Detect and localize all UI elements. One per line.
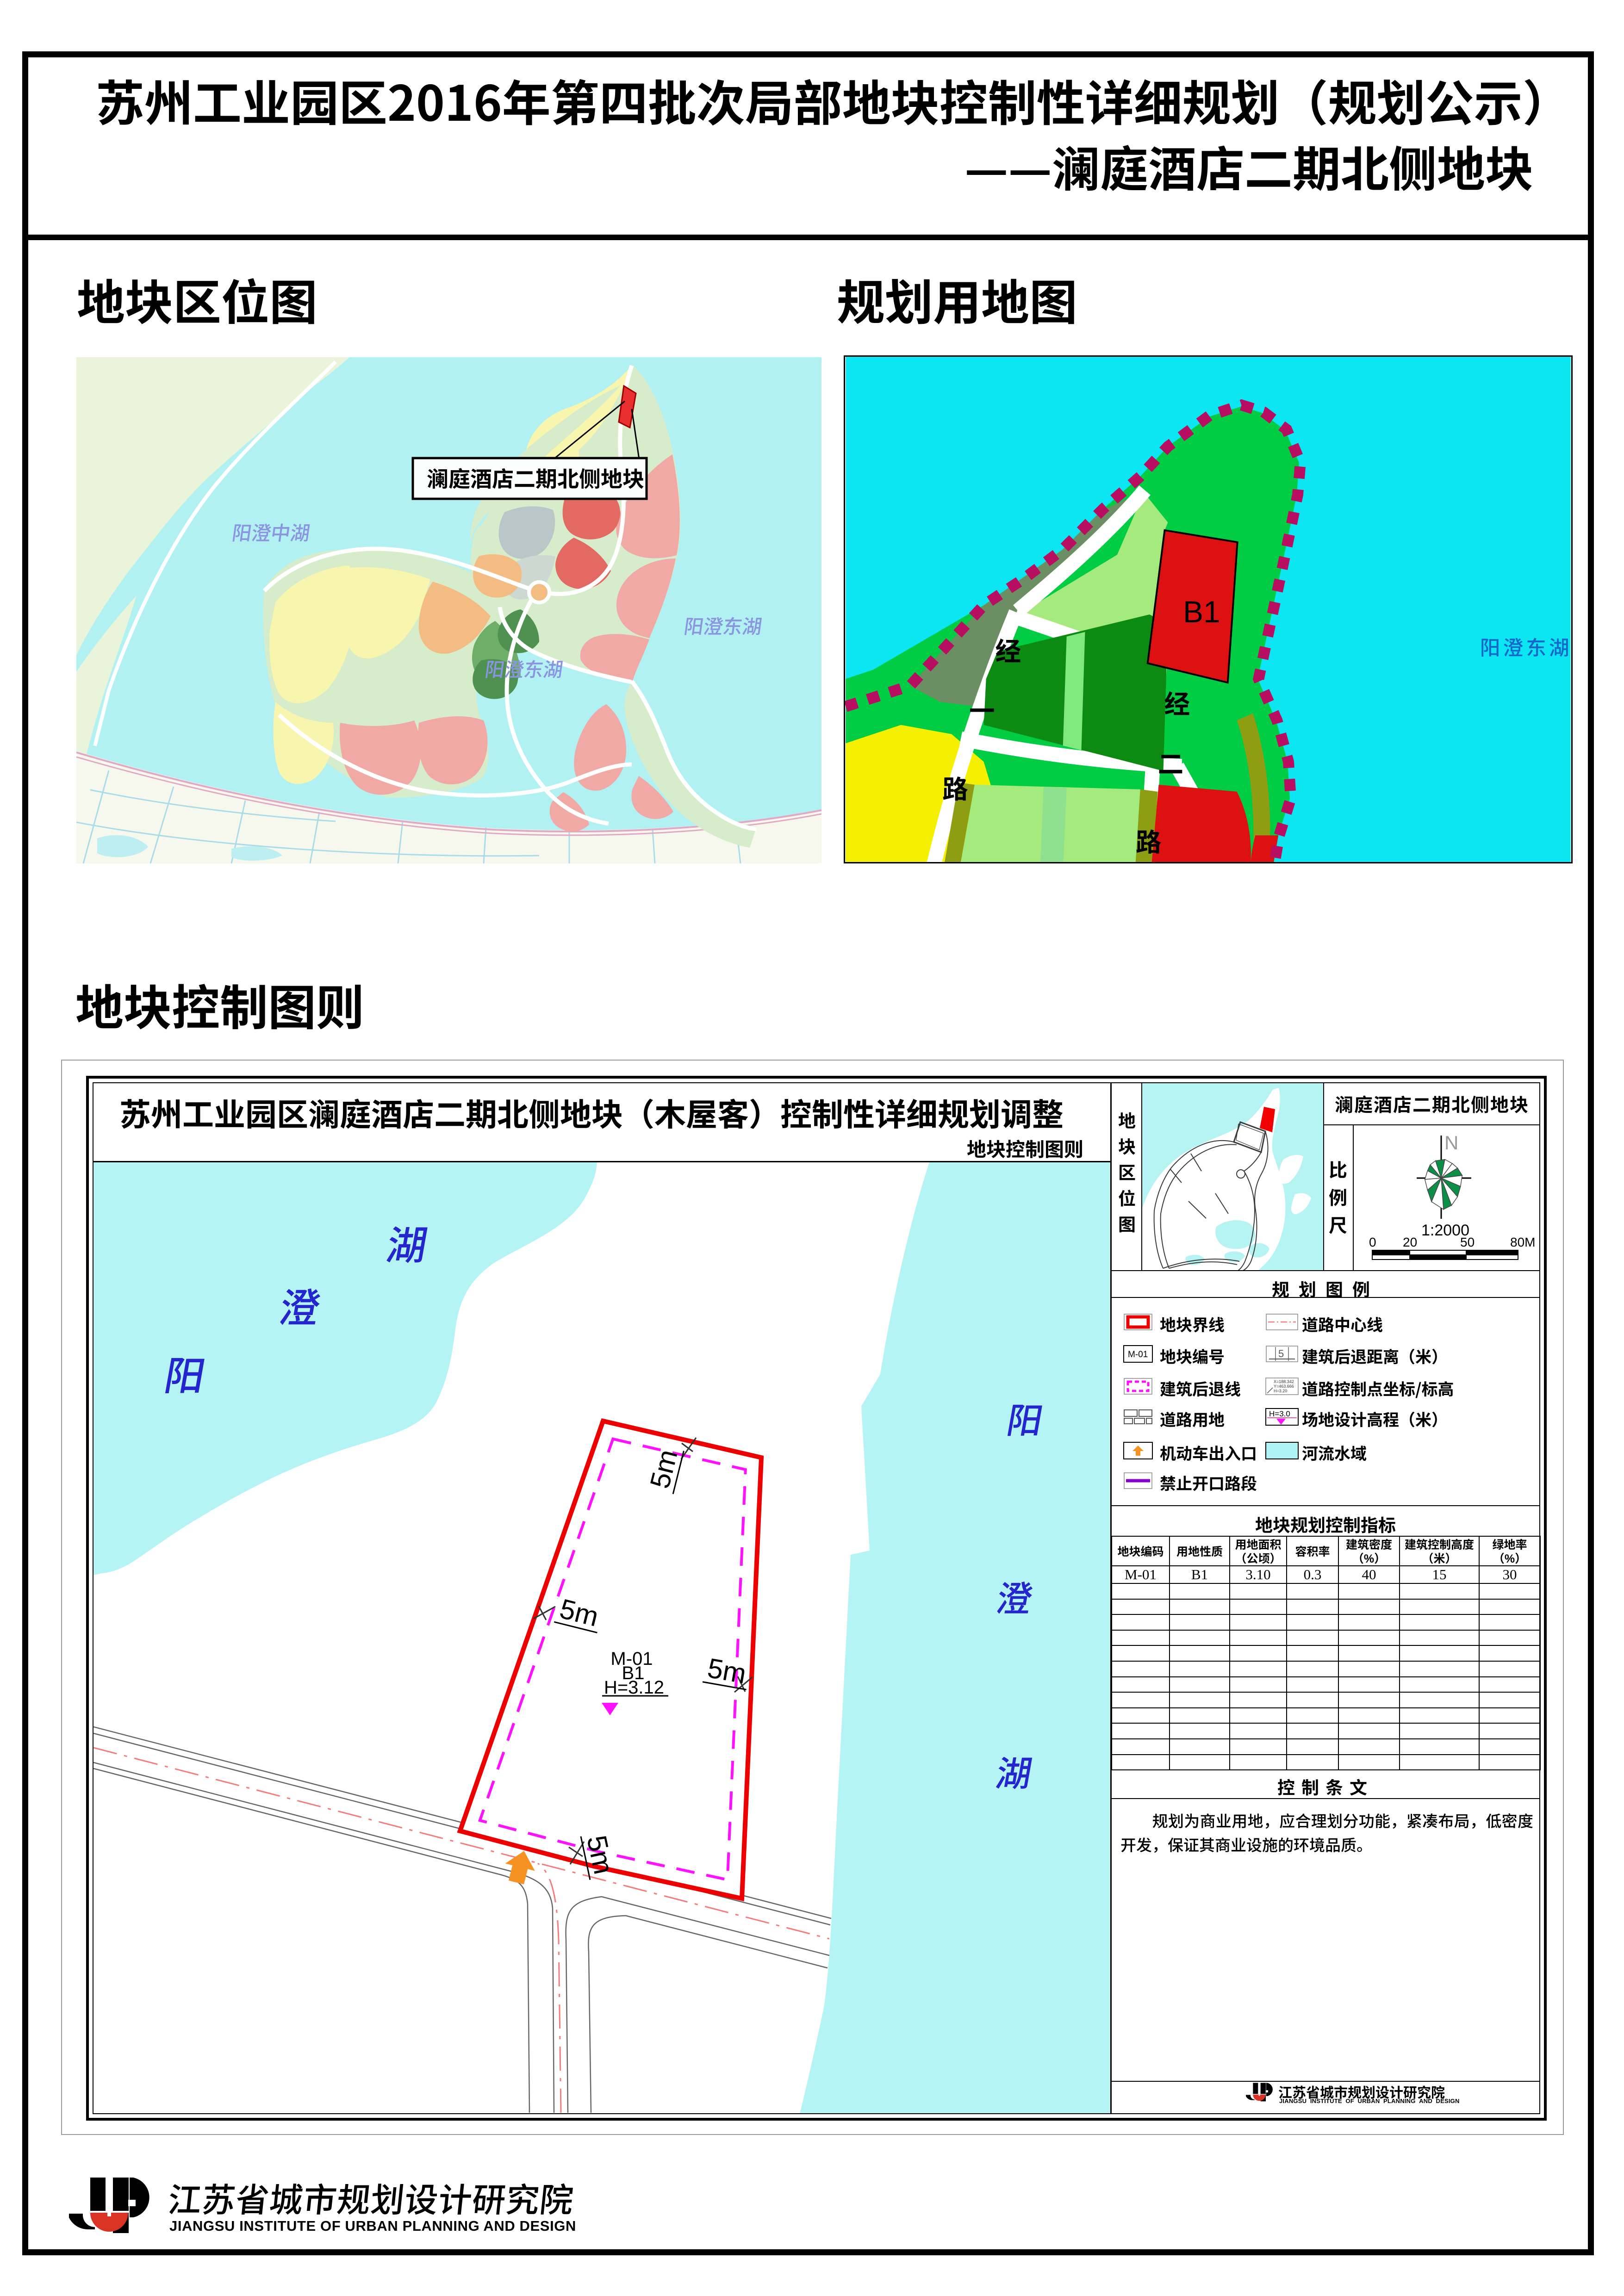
svg-text:阳澄东湖: 阳澄东湖	[1480, 631, 1572, 661]
svg-text:H=3.20: H=3.20	[1274, 1389, 1287, 1393]
svg-text:50: 50	[1460, 1235, 1475, 1249]
svg-text:二: 二	[1158, 744, 1184, 781]
svg-text:阳澄东湖: 阳澄东湖	[682, 611, 764, 639]
svg-text:80M: 80M	[1510, 1235, 1535, 1249]
svg-text:阳澄东湖: 阳澄东湖	[483, 654, 565, 683]
svg-text:路: 路	[1136, 822, 1162, 859]
svg-text:一: 一	[969, 691, 995, 728]
svg-text:H=3.0: H=3.0	[1269, 1409, 1290, 1418]
svg-text:X=188.342: X=188.342	[1274, 1379, 1294, 1384]
svg-text:N: N	[1444, 1132, 1458, 1154]
svg-text:20: 20	[1403, 1235, 1417, 1249]
svg-text:M-01: M-01	[1128, 1350, 1148, 1359]
svg-text:5: 5	[1278, 1348, 1284, 1359]
svg-text:经: 经	[996, 631, 1021, 668]
svg-text:Y=463.666: Y=463.666	[1274, 1384, 1294, 1389]
svg-text:澜庭酒店二期北侧地块: 澜庭酒店二期北侧地块	[427, 461, 644, 493]
svg-text:路: 路	[942, 769, 968, 807]
svg-text:阳澄中湖: 阳澄中湖	[230, 518, 312, 546]
svg-text:B1: B1	[1183, 595, 1220, 629]
svg-text:经: 经	[1164, 684, 1190, 721]
svg-text:0: 0	[1369, 1235, 1376, 1249]
